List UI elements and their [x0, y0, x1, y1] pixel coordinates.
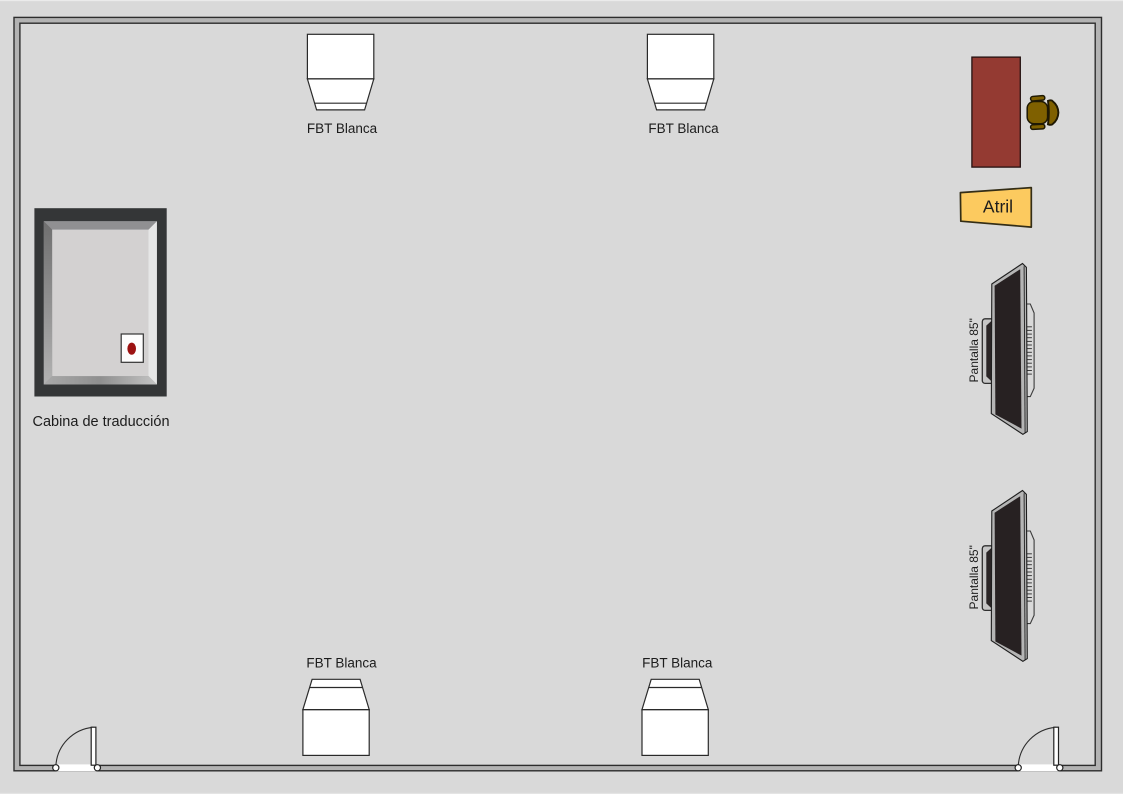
svg-text:FBT Blanca: FBT Blanca — [648, 121, 719, 136]
svg-text:Pantalla 85": Pantalla 85" — [967, 318, 981, 382]
svg-text:Cabina de traducción: Cabina de traducción — [32, 414, 169, 430]
svg-text:Atril: Atril — [983, 197, 1013, 217]
svg-text:FBT Blanca: FBT Blanca — [306, 655, 377, 670]
svg-text:Pantalla 85": Pantalla 85" — [967, 545, 981, 609]
svg-text:FBT Blanca: FBT Blanca — [307, 121, 378, 136]
svg-text:FBT Blanca: FBT Blanca — [642, 655, 713, 670]
